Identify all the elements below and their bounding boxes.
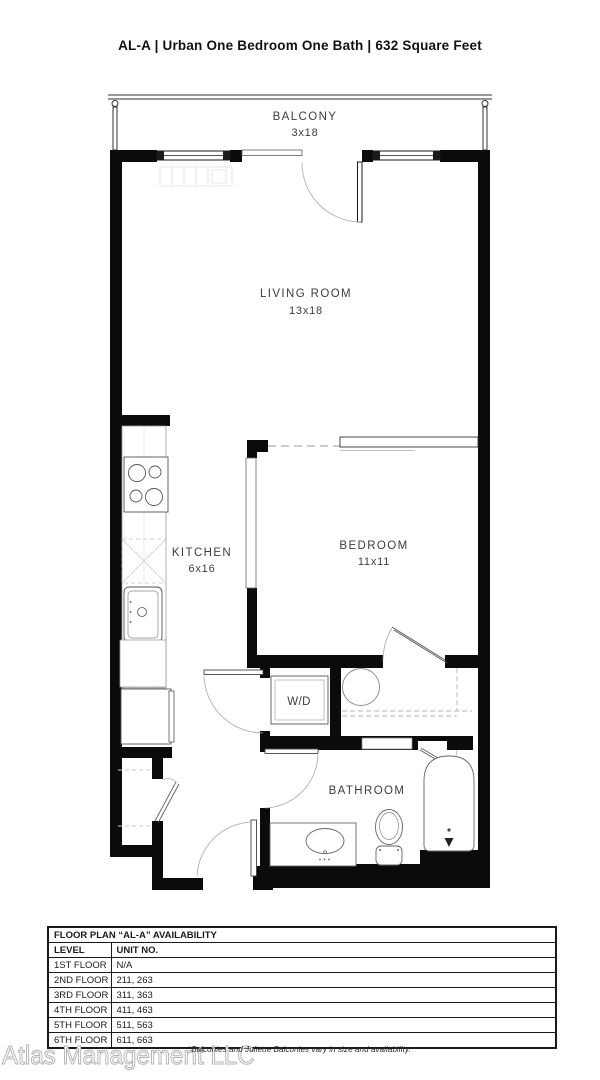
table-row: 5TH FLOOR 511, 563 [48,1018,556,1033]
balcony-label: BALCONY [273,111,338,123]
column-header-unit-no: UNIT NO. [111,943,556,958]
balcony-dims: 3x18 [291,127,318,139]
units-cell: 211, 263 [111,973,556,988]
availability-table: FLOOR PLAN “AL-A” AVAILABILITY LEVEL UNI… [47,926,557,1049]
table-row: 1ST FLOOR N/A [48,958,556,973]
washer-dryer-label: W/D [287,696,311,708]
bathroom-door [265,749,318,808]
level-cell: 2ND FLOOR [48,973,111,988]
level-cell: 5TH FLOOR [48,1018,111,1033]
stove [124,457,168,512]
bathroom-label: BATHROOM [329,785,406,797]
bedroom-pocket-door [246,458,256,588]
bedroom-sliding-door [340,437,478,451]
table-row: 2ND FLOOR 211, 263 [48,973,556,988]
bedroom-door [383,627,447,663]
entry-door [197,820,257,876]
bedroom-dims: 11x11 [358,556,390,568]
table-row: 3RD FLOOR 311, 363 [48,988,556,1003]
toilet [376,810,403,866]
vanity [270,823,356,866]
footnote: *Balconies and Juliette Balconies vary i… [188,1045,411,1054]
units-cell: 311, 363 [111,988,556,1003]
kitchen-dims: 6x16 [188,563,215,575]
floor-plan-page: AL-A | Urban One Bedroom One Bath | 632 … [0,0,600,1080]
bedroom-label: BEDROOM [339,540,408,552]
kitchen-cabinet [120,640,166,687]
balcony-rail [108,95,492,99]
window-right [373,151,440,160]
refrigerator [121,689,174,744]
table-row: 4TH FLOOR 411, 463 [48,1003,556,1018]
availability-table-title: FLOOR PLAN “AL-A” AVAILABILITY [48,927,556,943]
kitchen-label: KITCHEN [172,547,232,559]
wall-niche [362,738,412,749]
entry-closet [118,770,179,826]
level-cell: 3RD FLOOR [48,988,111,1003]
water-heater [343,669,380,706]
units-cell: 411, 463 [111,1003,556,1018]
balcony-door [242,150,362,222]
level-cell: 1ST FLOOR [48,958,111,973]
hvac-unit [160,167,232,186]
floor-plan-drawing: W/D [0,0,600,920]
units-cell: 511, 563 [111,1018,556,1033]
living-room-label: LIVING ROOM [260,288,352,300]
column-header-level: LEVEL [48,943,111,958]
bathtub [424,756,474,851]
washer-dryer-door [204,670,263,733]
window-left [157,151,230,160]
balcony-posts [112,101,488,151]
living-room-dims: 13x18 [289,305,323,317]
kitchen-sink [124,587,162,642]
level-cell: 4TH FLOOR [48,1003,111,1018]
units-cell: N/A [111,958,556,973]
